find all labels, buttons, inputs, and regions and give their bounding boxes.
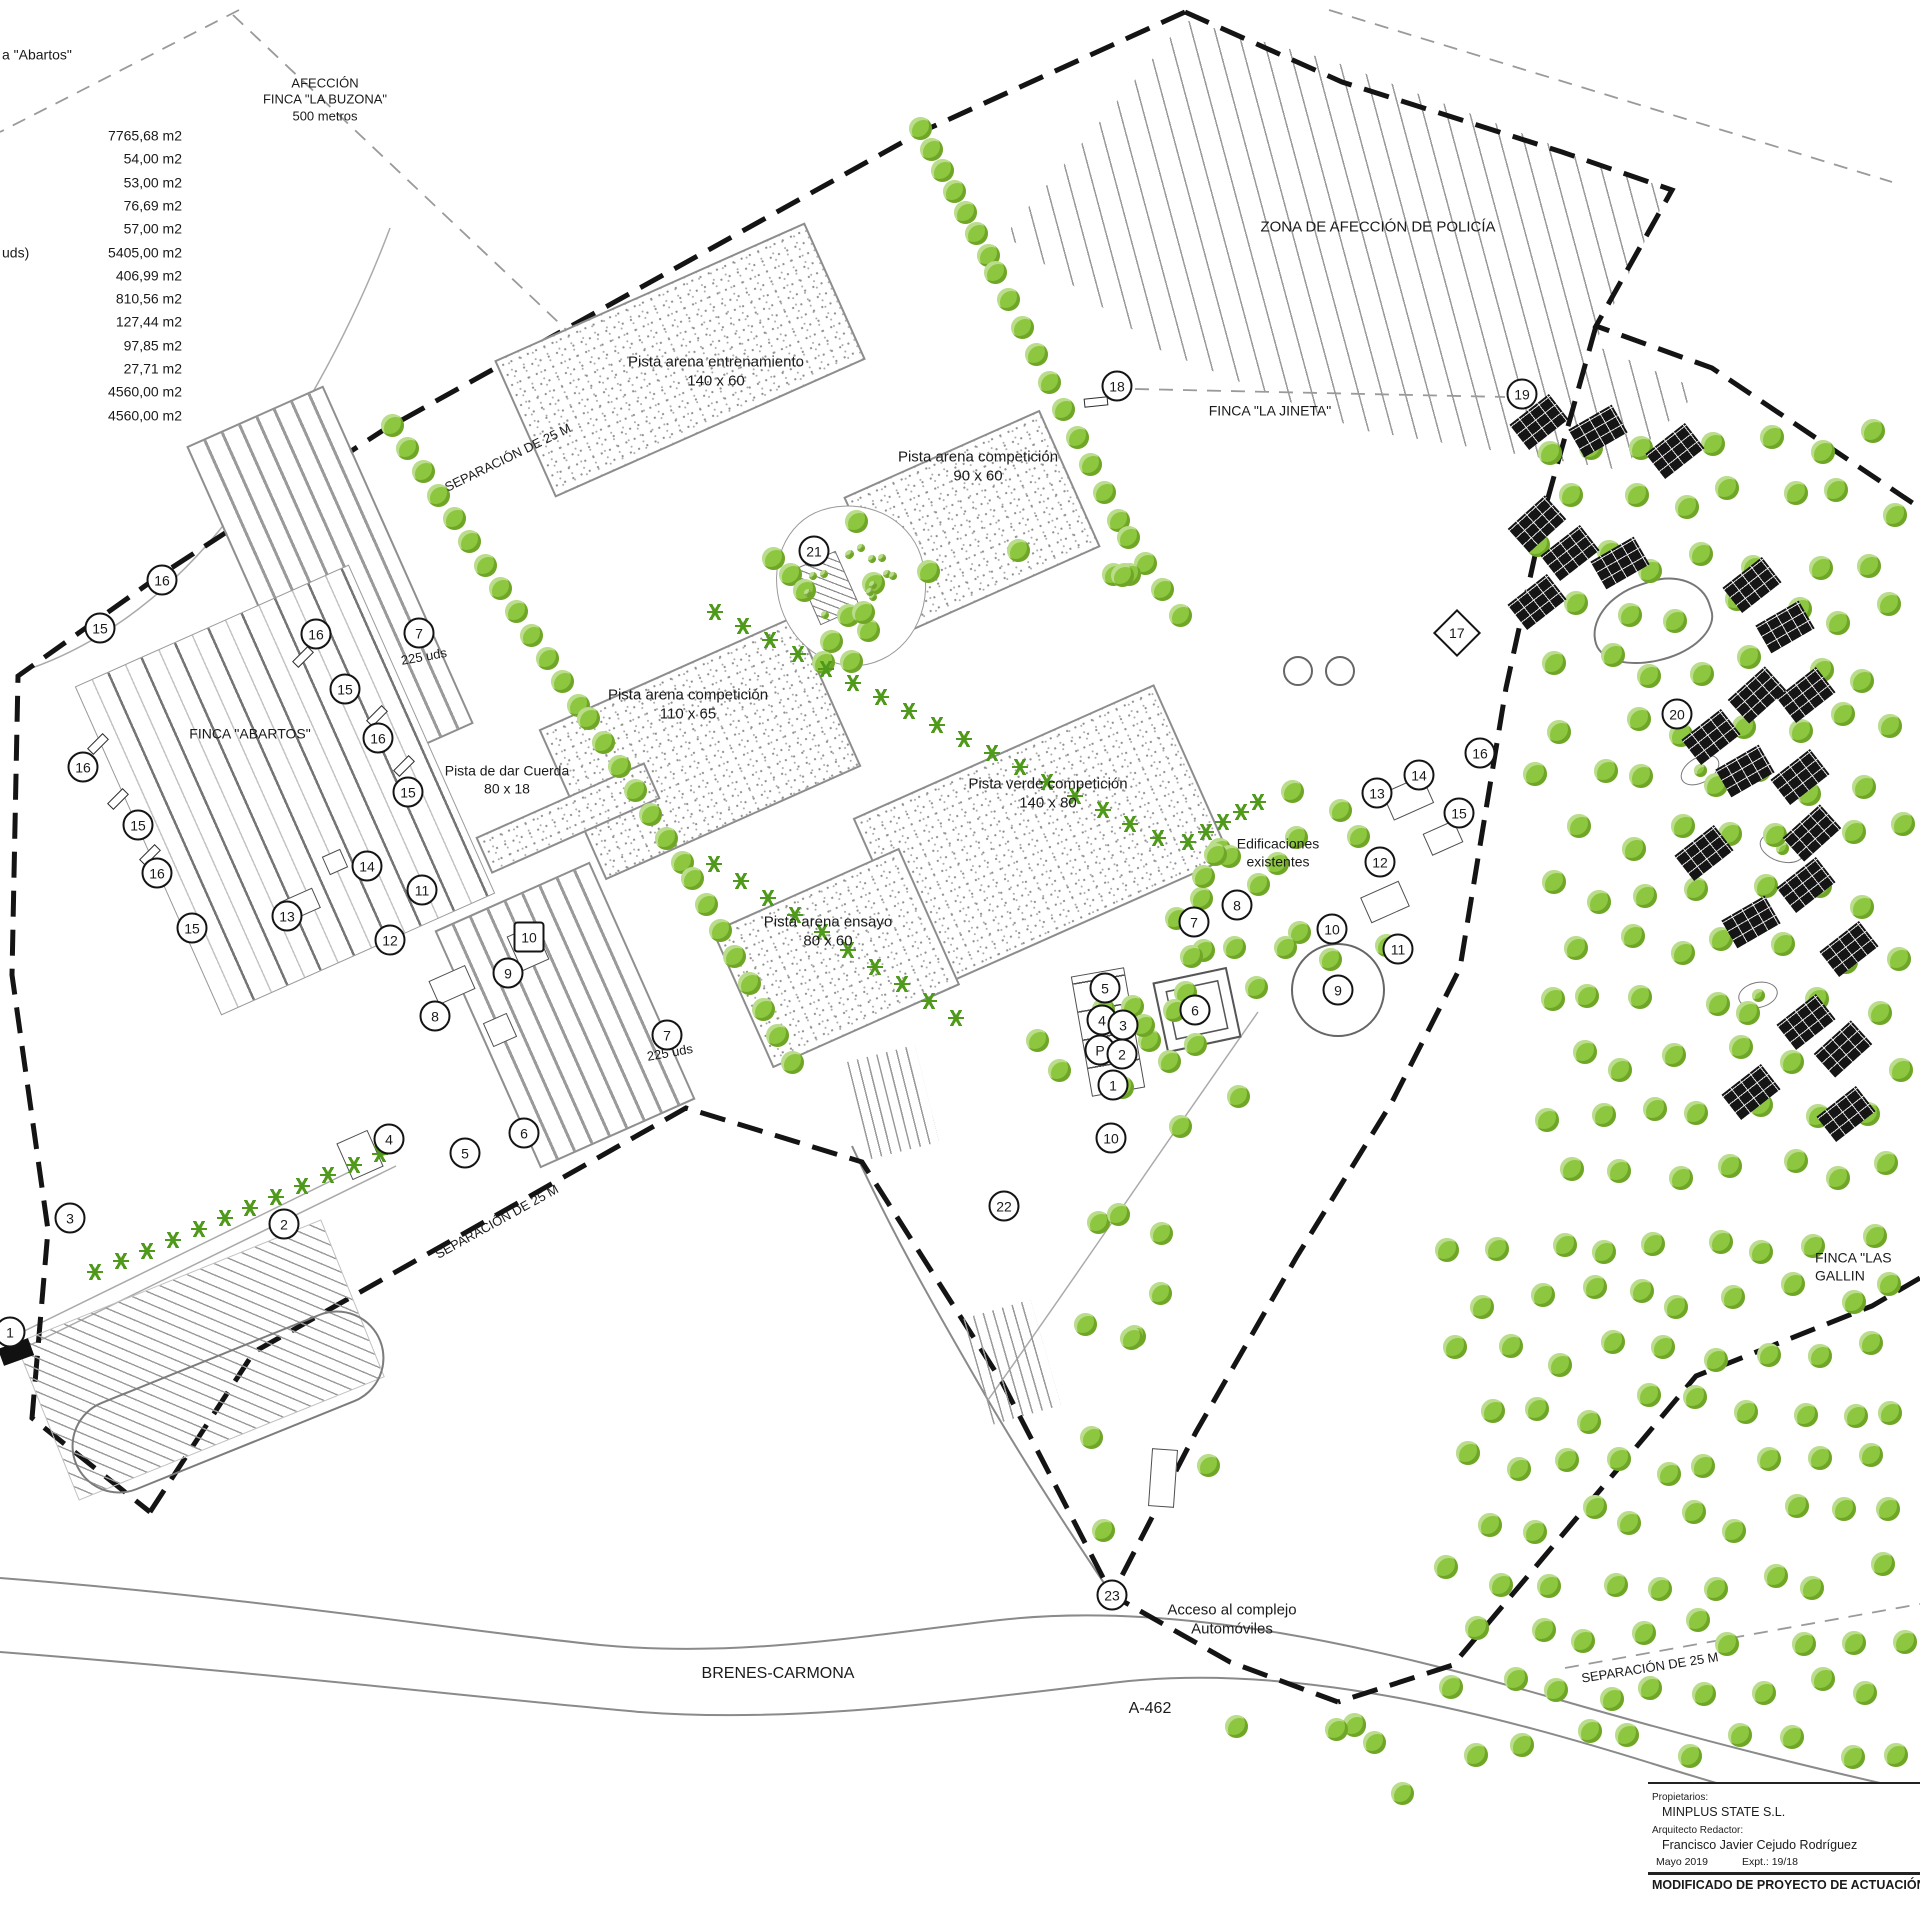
- afeccion-buzona-dashed: [233, 15, 575, 338]
- tree-icon: [1025, 343, 1048, 366]
- tree-icon: [1684, 877, 1708, 901]
- tree-icon: [655, 827, 678, 850]
- tree-icon: [1560, 1157, 1584, 1181]
- area-value: 27,71 m2: [0, 360, 182, 378]
- title-block-rule-2: [1648, 1872, 1920, 1875]
- dashed-topleft: [0, 10, 239, 132]
- marker-label: 2: [1118, 1047, 1126, 1061]
- tree-icon: [1485, 1237, 1509, 1261]
- marker-label: 12: [382, 933, 398, 947]
- tree-icon: [1625, 483, 1649, 507]
- tree-icon: [1618, 603, 1642, 627]
- tree-icon: [781, 1051, 804, 1074]
- tree-icon: [1706, 992, 1730, 1016]
- tree-icon: [1784, 481, 1808, 505]
- marker-3: 3: [1108, 1010, 1139, 1041]
- dashed-separacion-se: [1565, 1604, 1920, 1668]
- plan-label: A-462: [1129, 1699, 1172, 1719]
- tree-icon: [1842, 1290, 1866, 1314]
- marker-label: P: [1095, 1043, 1104, 1057]
- title-block-rule: [1648, 1782, 1920, 1784]
- marker-label: 5: [1101, 981, 1109, 995]
- marker-label: 10: [1103, 1131, 1119, 1145]
- area-value: 57,00 m2: [0, 220, 182, 238]
- marker-15: 15: [123, 810, 154, 841]
- tree-icon: [1608, 1058, 1632, 1082]
- tree-icon: [1169, 1115, 1192, 1138]
- tree-icon: [1093, 481, 1116, 504]
- star-tree-icon: [735, 618, 751, 634]
- tree-icon: [1007, 539, 1030, 562]
- tree-icon: [1887, 947, 1911, 971]
- plan-label: Pista verde competición 140 x 80: [968, 775, 1127, 813]
- star-tree-icon: [1012, 759, 1028, 775]
- tree-icon: [1874, 1151, 1898, 1175]
- tree-icon: [1592, 1103, 1616, 1127]
- marker-13: 13: [1362, 778, 1393, 809]
- tree-icon: [1621, 924, 1645, 948]
- arquitecto-value: Francisco Javier Cejudo Rodríguez: [1662, 1838, 1920, 1852]
- tree-icon: [1592, 1240, 1616, 1264]
- star-tree-icon: [165, 1232, 181, 1248]
- tree-icon: [1831, 702, 1855, 726]
- tree-icon: [1657, 1462, 1681, 1486]
- tree-icon: [752, 998, 775, 1021]
- star-tree-icon: [818, 661, 834, 677]
- marker-label: 4: [1098, 1013, 1106, 1027]
- tree-icon: [1689, 542, 1713, 566]
- area-value: 7765,68 m2: [0, 127, 182, 145]
- tree-icon: [639, 803, 662, 826]
- tree-icon: [1784, 1149, 1808, 1173]
- tree-icon: [1664, 1295, 1688, 1319]
- marker-label: 8: [431, 1009, 439, 1023]
- marker-19: 19: [1507, 379, 1538, 410]
- marker-3: 3: [55, 1203, 86, 1234]
- plan-label: FINCA "ABARTOS": [189, 725, 310, 743]
- tree-icon: [1785, 1494, 1809, 1518]
- marker-15: 15: [177, 913, 208, 944]
- tree-icon: [1789, 719, 1813, 743]
- star-tree-icon: [894, 976, 910, 992]
- tree-icon: [1583, 1495, 1607, 1519]
- tree-icon: [1470, 1295, 1494, 1319]
- tree-icon: [878, 554, 886, 562]
- tree-icon: [1648, 1577, 1672, 1601]
- marker-label: 16: [154, 573, 170, 587]
- tree-icon: [1764, 1564, 1788, 1588]
- marker-label: 10: [521, 930, 537, 944]
- tree-icon: [1564, 936, 1588, 960]
- tree-icon: [1690, 662, 1714, 686]
- tree-icon: [1794, 1403, 1818, 1427]
- tree-icon: [1641, 1232, 1665, 1256]
- tree-icon: [1857, 554, 1881, 578]
- star-tree-icon: [217, 1210, 233, 1226]
- star-tree-icon: [113, 1253, 129, 1269]
- marker-label: 4: [385, 1132, 393, 1146]
- tree-icon: [608, 755, 631, 778]
- tree-icon: [1535, 1108, 1559, 1132]
- tree-icon: [1889, 1058, 1913, 1082]
- site-plan: 1615161516151615161513141211109877654321…: [0, 0, 1920, 1920]
- dashed-topright: [1329, 10, 1892, 182]
- tree-icon: [1852, 775, 1876, 799]
- marker-15: 15: [1444, 798, 1475, 829]
- tree-icon: [1800, 1576, 1824, 1600]
- star-tree-icon: [948, 1010, 964, 1026]
- tree-icon: [1038, 371, 1061, 394]
- tree-icon: [695, 893, 718, 916]
- tree-icon: [1704, 1577, 1728, 1601]
- tree-icon: [1577, 1410, 1601, 1434]
- tree-icon: [943, 180, 966, 203]
- star-tree-icon: [1198, 824, 1214, 840]
- tree-icon: [1439, 1675, 1463, 1699]
- plan-label: a "Abartos": [2, 46, 72, 64]
- marker-18: 18: [1102, 371, 1133, 402]
- plan-label: BRENES-CARMONA: [702, 1664, 855, 1684]
- star-tree-icon: [294, 1178, 310, 1194]
- marker-11: 11: [1383, 934, 1414, 965]
- marker-label: 11: [415, 883, 430, 897]
- tree-icon: [868, 555, 876, 563]
- tree-icon: [1842, 820, 1866, 844]
- marker-label: 9: [1334, 983, 1342, 997]
- star-tree-icon: [1150, 830, 1166, 846]
- marker-label: 15: [184, 921, 200, 935]
- arquitecto-label: Arquitecto Redactor:: [1652, 1825, 1920, 1836]
- marker-9: 9: [493, 958, 524, 989]
- fecha-expediente-row: Mayo 2019 Expt.: 19/18: [1656, 1856, 1920, 1868]
- area-value: 4560,00 m2: [0, 407, 182, 425]
- marker-5: 5: [1090, 973, 1121, 1004]
- tree-icon: [1541, 987, 1565, 1011]
- marker-16: 16: [301, 619, 332, 650]
- marker-label: 7: [1190, 915, 1198, 929]
- tree-icon: [474, 554, 497, 577]
- tree-icon: [1792, 1632, 1816, 1656]
- tree-icon: [738, 972, 761, 995]
- area-value: 5405,00 m2: [0, 244, 182, 262]
- star-tree-icon: [760, 890, 776, 906]
- marker-12: 12: [1365, 847, 1396, 878]
- tree-icon: [852, 601, 875, 624]
- circ-shape: [1283, 656, 1313, 686]
- marker-16: 16: [147, 565, 178, 596]
- star-tree-icon: [346, 1157, 362, 1173]
- tree-icon: [1537, 1574, 1561, 1598]
- tree-icon: [1571, 1629, 1595, 1653]
- tree-icon: [857, 544, 865, 552]
- marker-label: 13: [1369, 786, 1385, 800]
- marker-label: 1: [1109, 1078, 1117, 1092]
- tree-icon: [1542, 651, 1566, 675]
- tree-icon: [1435, 1238, 1459, 1262]
- marker-12: 12: [375, 925, 406, 956]
- tree-icon: [1575, 984, 1599, 1008]
- star-tree-icon: [1122, 816, 1138, 832]
- tree-icon: [1363, 1731, 1386, 1754]
- plan-label: FINCA "LA JINETA": [1209, 402, 1332, 420]
- tree-icon: [1850, 669, 1874, 693]
- road-brenes-carmona-south: [0, 1652, 1920, 1840]
- star-tree-icon: [921, 993, 937, 1009]
- tree-icon: [1721, 1285, 1745, 1309]
- marker-label: 14: [359, 859, 375, 873]
- tree-icon: [1736, 1001, 1760, 1025]
- tree-icon: [1853, 1681, 1877, 1705]
- tree-icon: [1617, 1511, 1641, 1535]
- tree-icon: [920, 138, 943, 161]
- marker-10: 10: [514, 922, 545, 953]
- tree-icon: [1811, 1667, 1835, 1691]
- tree-icon: [551, 670, 574, 693]
- tree-icon: [845, 510, 868, 533]
- marker-11: 11: [407, 875, 438, 906]
- tree-icon: [1752, 1681, 1776, 1705]
- tree-icon: [1893, 1630, 1917, 1654]
- star-tree-icon: [242, 1200, 258, 1216]
- marker-label: 18: [1109, 379, 1125, 393]
- marker-6: 6: [1180, 995, 1211, 1026]
- tree-icon: [1682, 1500, 1706, 1524]
- marker-label: 3: [1119, 1018, 1127, 1032]
- tree-icon: [1192, 865, 1215, 888]
- marker-label: 3: [66, 1211, 74, 1225]
- tree-icon: [1538, 441, 1562, 465]
- tree-icon: [1643, 1097, 1667, 1121]
- area-value: 97,85 m2: [0, 337, 182, 355]
- tree-icon: [1752, 989, 1765, 1002]
- tree-icon: [1281, 780, 1304, 803]
- marker-label: 11: [1391, 942, 1406, 956]
- marker-6: 6: [509, 1118, 540, 1149]
- marker-label: 10: [1324, 922, 1340, 936]
- marker-15: 15: [85, 613, 116, 644]
- marker-label: 8: [1233, 898, 1241, 912]
- tree-icon: [1578, 1719, 1602, 1743]
- marker-2: 2: [269, 1209, 300, 1240]
- tree-icon: [840, 650, 863, 673]
- tree-icon: [1694, 764, 1707, 777]
- tree-icon: [1859, 1443, 1883, 1467]
- tree-icon: [681, 867, 704, 890]
- tree-icon: [1824, 478, 1848, 502]
- tree-icon: [1637, 1383, 1661, 1407]
- tree-icon: [1329, 799, 1352, 822]
- tree-icon: [1567, 814, 1591, 838]
- marker-label: 9: [504, 966, 512, 980]
- marker-14: 14: [1404, 760, 1435, 791]
- tree-icon: [1151, 578, 1174, 601]
- out-shape: [1148, 1448, 1178, 1508]
- tree-icon: [1842, 1631, 1866, 1655]
- tree-icon: [1850, 895, 1874, 919]
- marker-label: 17: [1449, 626, 1465, 640]
- tree-icon: [1701, 432, 1725, 456]
- tree-icon: [1184, 1033, 1207, 1056]
- plan-label: Pista arena entrenamiento 140 x 60: [628, 353, 804, 391]
- tree-icon: [821, 611, 829, 619]
- star-tree-icon: [901, 703, 917, 719]
- tree-icon: [1749, 1240, 1773, 1264]
- marker-20: 20: [1662, 699, 1693, 730]
- star-tree-icon: [268, 1189, 284, 1205]
- marker-label: 15: [1451, 806, 1467, 820]
- marker-label: 16: [1472, 746, 1488, 760]
- tree-icon: [592, 731, 615, 754]
- marker-9: 9: [1323, 975, 1354, 1006]
- tree-icon: [396, 437, 419, 460]
- tree-icon: [412, 460, 435, 483]
- marker-16: 16: [142, 858, 173, 889]
- tree-icon: [1111, 564, 1134, 587]
- tree-icon: [1637, 664, 1661, 688]
- tree-icon: [1627, 707, 1651, 731]
- tree-icon: [505, 600, 528, 623]
- star-tree-icon: [984, 745, 1000, 761]
- marker-label: 6: [1191, 1003, 1199, 1017]
- marker-label: 1: [6, 1325, 14, 1339]
- tree-icon: [1632, 1621, 1656, 1645]
- road-brenes-carmona-north: [0, 1578, 1920, 1792]
- plan-label: Pista de dar Cuerda 80 x 18: [445, 763, 570, 798]
- plan-label: Acceso al complejo Automóviles: [1167, 1601, 1296, 1639]
- tree-icon: [1878, 714, 1902, 738]
- tree-icon: [536, 647, 559, 670]
- tree-icon: [1832, 1497, 1856, 1521]
- marker-label: 14: [1411, 768, 1427, 782]
- area-value: 53,00 m2: [0, 174, 182, 192]
- marker-16: 16: [363, 723, 394, 754]
- tree-icon: [1633, 884, 1657, 908]
- area-value: 4560,00 m2: [0, 384, 182, 402]
- plan-label: FINCA "LAS GALLIN: [1815, 1250, 1920, 1285]
- marker-23: 23: [1097, 1580, 1128, 1611]
- marker-label: 16: [308, 627, 324, 641]
- marker-5: 5: [450, 1138, 481, 1169]
- tree-icon: [1464, 1743, 1488, 1767]
- tree-icon: [1662, 1043, 1686, 1067]
- tree-icon: [1066, 426, 1089, 449]
- star-tree-icon: [1215, 814, 1231, 830]
- star-tree-icon: [139, 1243, 155, 1259]
- tree-icon: [1781, 1272, 1805, 1296]
- marker-8: 8: [1222, 890, 1253, 921]
- tree-icon: [1811, 440, 1835, 464]
- tree-icon: [1555, 1448, 1579, 1472]
- tree-icon: [1544, 1678, 1568, 1702]
- boundary-zona-policia: [1185, 12, 1920, 508]
- marker-7: 7: [404, 618, 435, 649]
- plan-label: Edificaciones existentes: [1237, 836, 1320, 871]
- tree-icon: [1120, 1327, 1143, 1350]
- tree-icon: [1247, 873, 1270, 896]
- dashed-jineta: [1135, 389, 1505, 397]
- tree-icon: [1150, 1222, 1173, 1245]
- marker-label: 20: [1669, 707, 1685, 721]
- star-tree-icon: [1250, 794, 1266, 810]
- propietarios-label: Propietarios:: [1652, 1792, 1920, 1803]
- tree-icon: [577, 707, 600, 730]
- tree-icon: [1547, 720, 1571, 744]
- tree-icon: [1718, 1154, 1742, 1178]
- tree-icon: [1197, 1454, 1220, 1477]
- plan-label: Pista arena ensayo 80 x 60: [764, 913, 892, 951]
- tree-icon: [931, 159, 954, 182]
- tree-icon: [1754, 874, 1778, 898]
- marker-13: 13: [272, 901, 303, 932]
- tree-icon: [1841, 1745, 1865, 1769]
- plan-label: ZONA DE AFECCIÓN DE POLICÍA: [1260, 219, 1495, 238]
- marker-1: 1: [1098, 1070, 1129, 1101]
- tree-icon: [1443, 1335, 1467, 1359]
- tree-icon: [1669, 1166, 1693, 1190]
- tree-icon: [1663, 609, 1687, 633]
- marker-label: 13: [279, 909, 295, 923]
- marker-label: 15: [400, 785, 416, 799]
- plan-label: AFECCIÓN FINCA "LA BUZONA" 500 metros: [263, 76, 387, 125]
- tree-icon: [1245, 976, 1268, 999]
- tree-icon: [1542, 870, 1566, 894]
- area-value: 76,69 m2: [0, 197, 182, 215]
- area-value: 810,56 m2: [0, 290, 182, 308]
- tree-icon: [1107, 1203, 1130, 1226]
- tree-icon: [1671, 814, 1695, 838]
- marker-10: 10: [1317, 914, 1348, 945]
- tree-icon: [1080, 1426, 1103, 1449]
- tree-icon: [866, 588, 874, 596]
- marker-label: 5: [461, 1146, 469, 1160]
- marker-4: 4: [374, 1124, 405, 1155]
- tree-icon: [1709, 1230, 1733, 1254]
- title-block: Propietarios: MINPLUS STATE S.L. Arquite…: [1648, 1782, 1920, 1920]
- tree-icon: [762, 547, 785, 570]
- fecha: Mayo 2019: [1656, 1856, 1708, 1868]
- marker-15: 15: [330, 674, 361, 705]
- marker-label: 15: [130, 818, 146, 832]
- area-value: 127,44 m2: [0, 314, 182, 332]
- tree-icon: [1715, 476, 1739, 500]
- star-tree-icon: [320, 1167, 336, 1183]
- marker-16: 16: [1465, 738, 1496, 769]
- tree-icon: [1859, 1331, 1883, 1355]
- marker-21: 21: [799, 536, 830, 567]
- circ-shape: [1325, 656, 1355, 686]
- tree-icon: [1564, 591, 1588, 615]
- tree-icon: [909, 117, 932, 140]
- tree-icon: [1734, 1400, 1758, 1424]
- star-tree-icon: [867, 959, 883, 975]
- tree-icon: [1169, 604, 1192, 627]
- tree-icon: [458, 530, 481, 553]
- tree-icon: [1600, 1687, 1624, 1711]
- marker-16: 16: [68, 752, 99, 783]
- marker-label: 23: [1104, 1588, 1120, 1602]
- propietarios-value: MINPLUS STATE S.L.: [1662, 1805, 1920, 1819]
- marker-label: 16: [370, 731, 386, 745]
- marker-8: 8: [420, 1001, 451, 1032]
- marker-7: 7: [1179, 907, 1210, 938]
- star-tree-icon: [1180, 834, 1196, 850]
- marker-label: 15: [92, 621, 108, 635]
- tree-icon: [1158, 1050, 1181, 1073]
- marker-22: 22: [989, 1191, 1020, 1222]
- tree-icon: [1274, 936, 1297, 959]
- tree-icon: [1117, 526, 1140, 549]
- tree-icon: [1607, 1447, 1631, 1471]
